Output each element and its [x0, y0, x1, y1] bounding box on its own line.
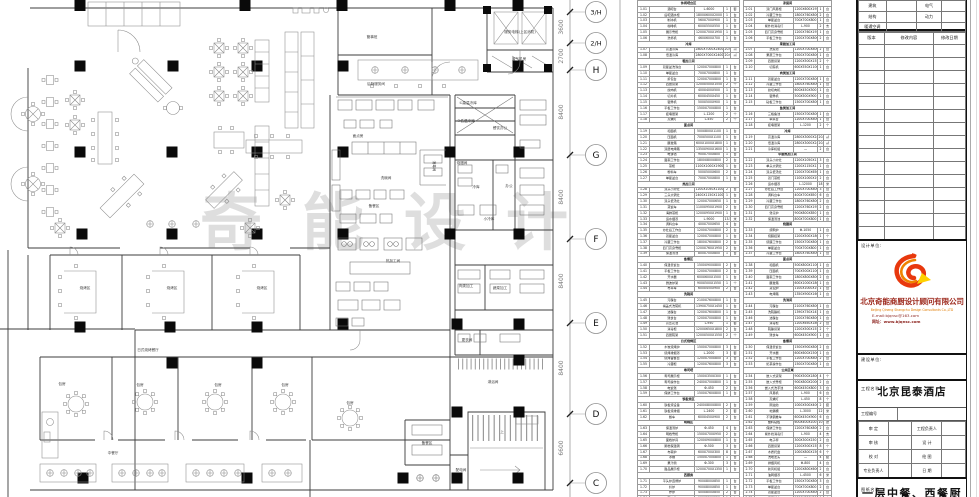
room-label: 备餐区 — [369, 203, 380, 208]
design-unit-section: 设计单位: 北京奇能商厨设计顾问有限公司 Beijing Qineng Shan… — [858, 241, 966, 355]
dimension-label: 8400 — [558, 360, 565, 375]
revision-row — [859, 123, 966, 136]
room-label: 蔬菜加工 — [493, 285, 508, 290]
floor-plan: 3/H2/HHGFEDC 360027008400840084008400660… — [0, 0, 632, 497]
svg-text:2/H: 2/H — [590, 39, 601, 47]
revision-row — [859, 110, 966, 123]
room-label: 淋浴间 — [488, 379, 499, 384]
sheet-border-line — [970, 0, 971, 497]
revision-row — [859, 84, 966, 97]
revision-row — [859, 149, 966, 162]
room-label: 包房 — [281, 382, 289, 387]
revision-row — [859, 71, 966, 84]
revision-row — [859, 188, 966, 201]
company-website: 网址：www.bjqnsc.com — [858, 319, 966, 325]
title-block: 建筑电气结构动力暖通空调 版本 修改内容 修改日期 设计单位: 北京奇能商厨设计… — [856, 0, 967, 497]
svg-text:H: H — [593, 66, 600, 76]
bbq-counters — [59, 265, 275, 320]
walls — [0, 8, 553, 497]
room-label: ①高温冷库 — [459, 100, 477, 105]
design-unit-label: 设计单位: — [861, 243, 882, 249]
room-label: 包房 — [58, 381, 66, 386]
company-name-en: Beijing Qineng Shangchu Design Consultan… — [858, 308, 966, 312]
dimension-label: 3600 — [558, 19, 565, 34]
signature-row: 校 对绘 图 — [859, 450, 966, 464]
revision-row — [859, 97, 966, 110]
room-label: 烧烤区 — [80, 285, 91, 290]
signature-row: 审 定工程负责人 — [859, 422, 966, 436]
revision-row — [859, 175, 966, 188]
room-label: 上 — [500, 429, 504, 434]
room-label: 面点房 — [353, 133, 364, 138]
dimension-label: 2700 — [558, 48, 565, 63]
client-label: 建设单位: — [861, 357, 882, 363]
revision-row — [859, 58, 966, 71]
discipline-table: 建筑电气结构动力暖通空调 — [858, 0, 966, 33]
svg-text:F: F — [593, 235, 598, 245]
dimension-label: 6600 — [558, 440, 565, 455]
room-label: 后勤服务间 — [367, 81, 385, 86]
room-label: 肉类加工 — [459, 283, 474, 288]
stairs — [458, 364, 546, 474]
room-label: 包房 — [214, 382, 222, 387]
company-name-cn: 北京奇能商厨设计顾问有限公司 — [858, 296, 966, 307]
svg-text:E: E — [593, 319, 599, 329]
room-label: 热加工间 — [386, 258, 401, 263]
sheet-name-label: 图纸名称: — [861, 487, 882, 493]
client-section: 建设单位: — [858, 355, 966, 381]
signature-table: 审 定工程负责人审 核设 计校 对绘 图专业负责人日 期 — [858, 421, 966, 479]
svg-text:3/H: 3/H — [590, 8, 601, 16]
revision-row — [859, 201, 966, 214]
discipline-row: 建筑电气 — [859, 1, 966, 12]
room-label: 小冷库 — [484, 216, 495, 221]
room-label: 包房 — [346, 400, 354, 405]
project-label: 工程名称: — [861, 386, 882, 392]
svg-text:C: C — [593, 479, 599, 489]
room-label: 配电间 — [456, 467, 467, 472]
room-label: 包房 — [136, 382, 144, 387]
room-label: 管事班 — [367, 34, 378, 39]
room-label: 冷库 — [472, 184, 480, 189]
project-no-label: 工程编号 — [858, 408, 898, 420]
rev-col-version: 版本 — [859, 32, 885, 45]
revision-row — [859, 45, 966, 58]
equipment-schedule-left: 休闲吧台区1.01酒吧台L-60001套1.02后吧酒水柜1800X600X20… — [637, 0, 740, 497]
dining-furniture — [11, 2, 478, 238]
cad-drawing-sheet: { "watermark": "奇能设计", "plan": { "grid":… — [0, 0, 979, 497]
discipline-row: 结构动力 — [859, 11, 966, 22]
revision-row — [859, 214, 966, 227]
room-label: 消毒间 — [432, 161, 437, 172]
revision-row — [859, 227, 966, 241]
revision-table: 版本 修改内容 修改日期 — [858, 31, 966, 241]
equipment-schedule-right: 凉菜间2.01双门风幕柜1200X600X19501台2.02冷藏工作台1800… — [743, 0, 832, 497]
svg-text:D: D — [593, 410, 600, 420]
structural-columns — [75, 0, 553, 484]
project-section: 工程名称: 北京昆泰酒店 — [858, 384, 966, 408]
room-label: 服务电梯(上区消防) — [504, 29, 536, 34]
room-label: ②低温冷库 — [457, 118, 475, 123]
revision-row — [859, 162, 966, 175]
project-no-row: 工程编号 — [858, 408, 966, 421]
room-label: 洗碗间 — [381, 175, 392, 180]
room-label: 烧腊间 — [457, 160, 468, 165]
dimension-label: 8400 — [558, 189, 565, 204]
room-label: 烧烤区 — [257, 285, 268, 290]
signature-row: 审 核设 计 — [859, 436, 966, 450]
revision-row — [859, 136, 966, 149]
company-email: E-mail:bjqnsc@163.com — [858, 313, 966, 318]
sheet-name-section: 图纸名称: 一层中餐、西餐厨房 — [858, 485, 966, 497]
rev-col-date: 修改日期 — [933, 32, 965, 45]
room-label: 中餐厅 — [108, 450, 119, 455]
room-label: 废气机房 — [512, 56, 527, 61]
room-label: 日式烧烤餐厅 — [137, 347, 159, 352]
dimension-label: 8400 — [558, 104, 565, 119]
rev-col-content: 修改内容 — [884, 32, 933, 45]
signature-row: 专业负责人日 期 — [859, 464, 966, 479]
private-room-tables — [40, 390, 363, 483]
svg-text:G: G — [593, 151, 600, 161]
sheet-edge-line — [976, 0, 977, 497]
company-logo — [890, 249, 934, 293]
room-label: 备餐区 — [422, 440, 433, 445]
room-label: 更衣间 — [462, 337, 473, 342]
room-label: 餐饮办公 — [493, 125, 508, 130]
dimension-strip: 3/H2/HHGFEDC 360027008400840084008400660… — [558, 0, 620, 497]
room-label: 烧烤区 — [167, 285, 178, 290]
room-label: 办公 — [505, 183, 513, 188]
dimension-label: 8400 — [558, 273, 565, 288]
